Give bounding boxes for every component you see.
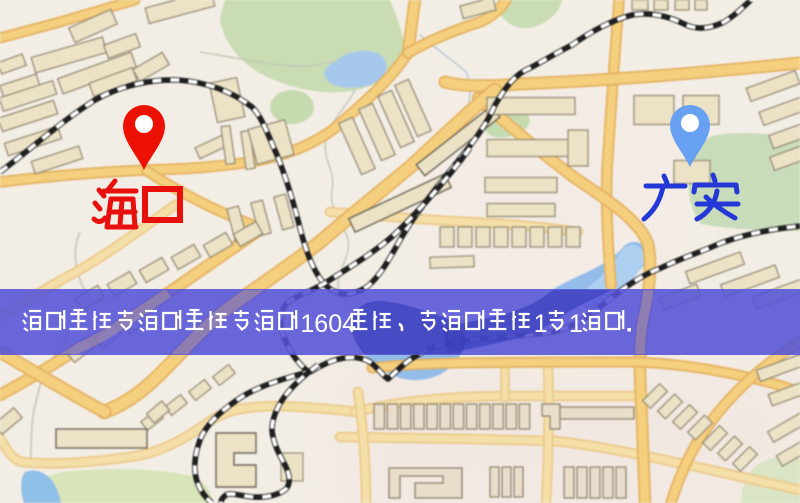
svg-text:1604: 1604 — [300, 310, 356, 338]
svg-text:1: 1 — [569, 310, 583, 338]
svg-text:1: 1 — [534, 310, 548, 338]
